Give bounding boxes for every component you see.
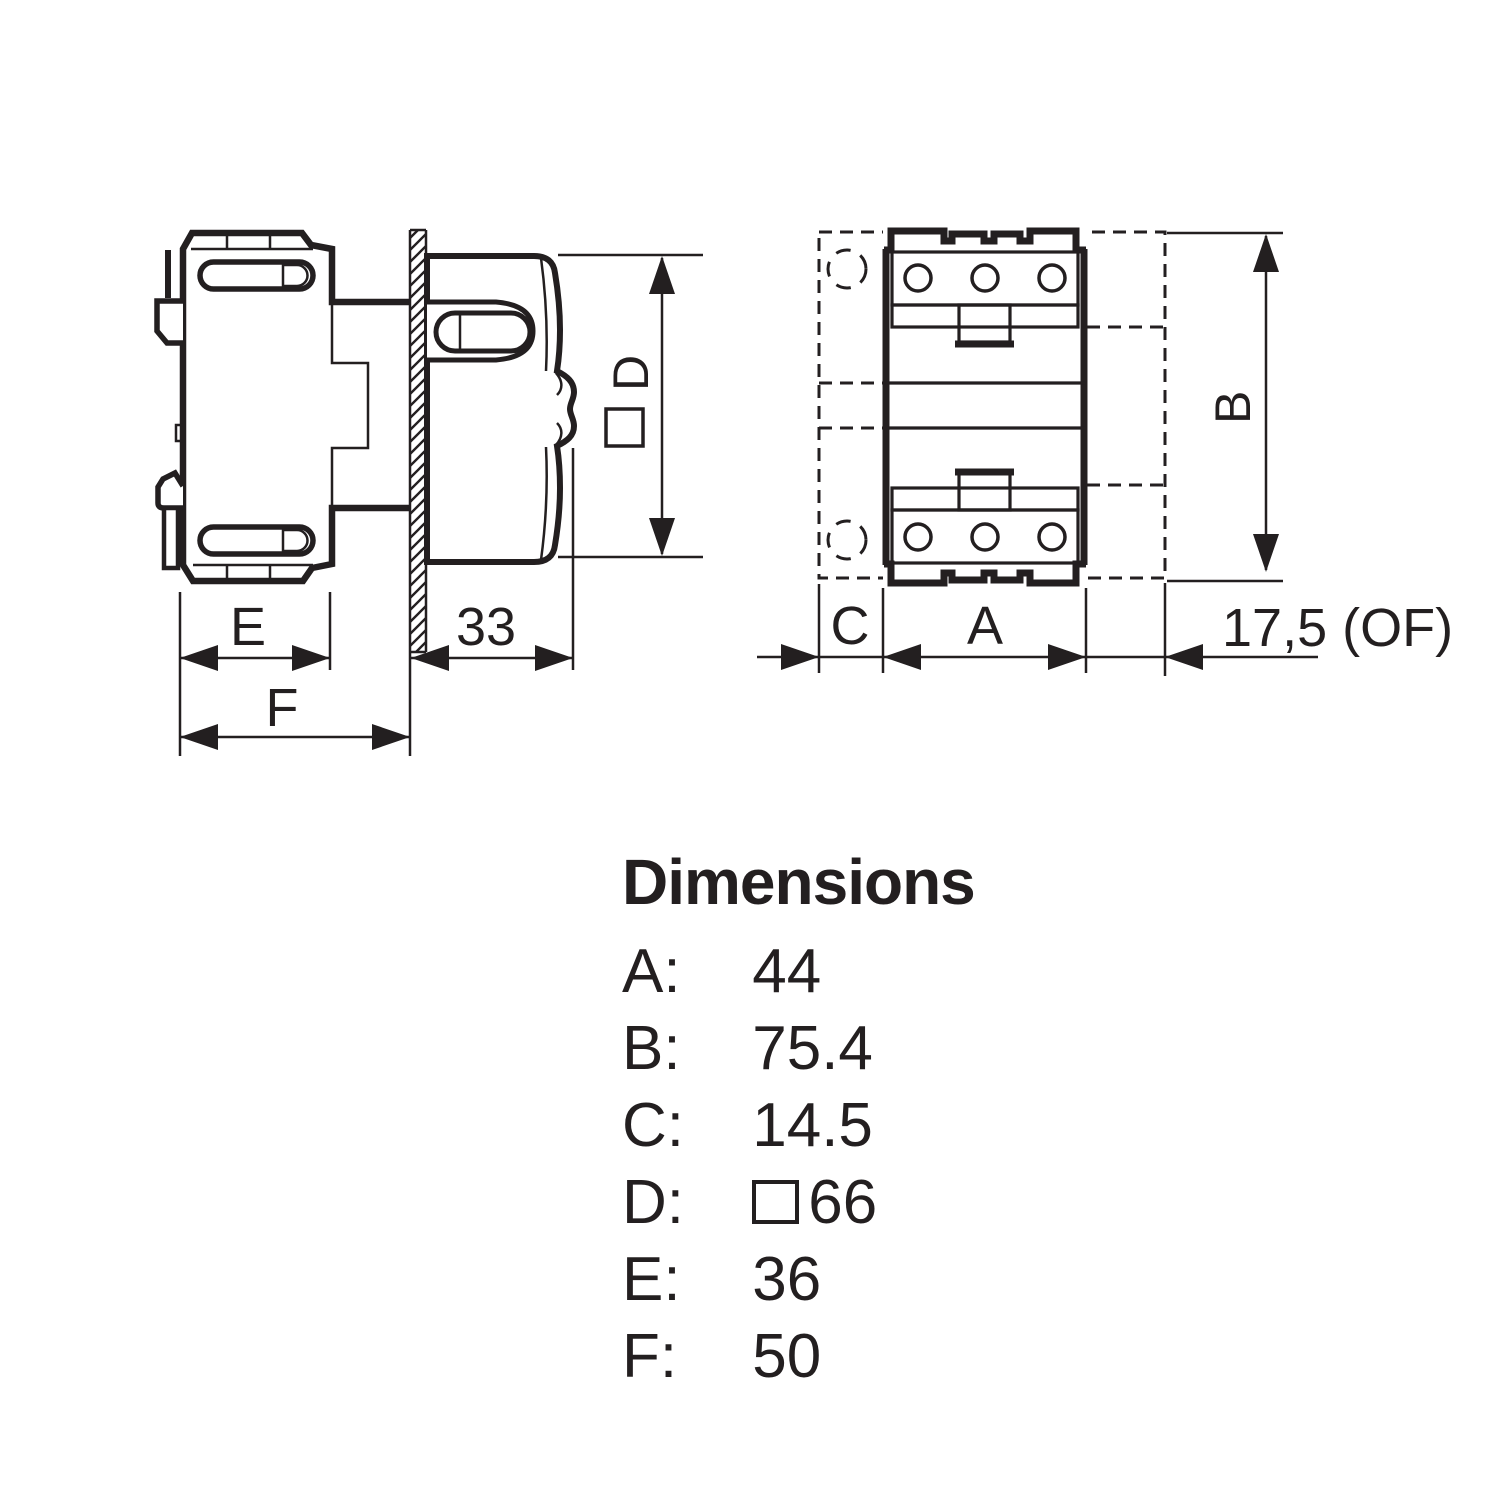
dim-label-a: A — [967, 596, 1003, 656]
arrowhead-down-icon — [649, 518, 675, 556]
legend-value: 50 — [752, 1322, 821, 1391]
arrowhead-left-icon — [1165, 644, 1203, 670]
arrowhead-right-icon — [372, 724, 410, 750]
arrowhead-left-icon — [180, 645, 218, 671]
din-rail-clip-top — [157, 250, 183, 343]
legend-label: A: — [622, 940, 735, 1004]
knob-handle — [436, 313, 530, 351]
dimensions-legend: Dimensions A: 44 B: 75.4 C: 14.5 D: 66 E… — [622, 850, 975, 1402]
slot-top — [200, 262, 313, 289]
legend-row-c: C: 14.5 — [622, 1094, 975, 1171]
mounting-panel — [410, 230, 426, 652]
dim-label-f: F — [266, 678, 299, 738]
legend-value: 75.4 — [752, 1014, 873, 1083]
legend-label: F: — [622, 1325, 735, 1389]
arrowhead-left-icon — [180, 724, 218, 750]
dim-label-b: B — [1205, 391, 1261, 424]
arrowhead-right-icon — [1048, 644, 1086, 670]
dim-label-c: C — [831, 596, 870, 656]
legend-value: 14.5 — [752, 1091, 873, 1160]
legend-value: 66 — [808, 1168, 877, 1237]
arrowhead-up-icon — [1253, 234, 1279, 272]
legend-label: C: — [622, 1094, 735, 1158]
legend-label: B: — [622, 1017, 735, 1081]
mounting-hole-dashed — [828, 521, 866, 559]
rotary-knob — [427, 256, 574, 562]
legend-value: 36 — [752, 1245, 821, 1314]
arrowhead-right-icon — [781, 644, 819, 670]
din-rail-clip-bottom — [158, 473, 183, 568]
slot-bottom — [200, 527, 313, 554]
mounting-hole-dashed — [828, 250, 866, 288]
dim-label-e: E — [230, 597, 266, 657]
legend-row-a: A: 44 — [622, 940, 975, 1017]
dimension-d: D — [558, 255, 703, 557]
dim-label-of: 17,5 (OF) — [1222, 598, 1453, 658]
front-bottom-dimensions: C A 17,5 (OF) — [757, 583, 1453, 676]
legend-row-f: F: 50 — [622, 1325, 975, 1402]
arrowhead-right-icon — [292, 645, 330, 671]
dim-label-d: D — [603, 355, 659, 391]
arrowhead-right-icon — [535, 645, 573, 671]
legend-title: Dimensions — [622, 850, 975, 914]
dim-label-33: 33 — [456, 597, 516, 657]
legend-row-d: D: 66 — [622, 1171, 975, 1248]
legend-label: D: — [622, 1171, 735, 1235]
front-view: B C A 17,5 (OF) — [757, 226, 1453, 676]
legend-row-e: E: 36 — [622, 1248, 975, 1325]
legend-rows: A: 44 B: 75.4 C: 14.5 D: 66 E: 36 F: 50 — [622, 940, 975, 1402]
square-symbol — [606, 409, 643, 446]
square-symbol — [752, 1180, 799, 1224]
arrowhead-left-icon — [883, 644, 921, 670]
dimension-b: B — [1167, 233, 1283, 581]
legend-value: 44 — [752, 937, 821, 1006]
arrowhead-down-icon — [1253, 534, 1279, 572]
legend-row-b: B: 75.4 — [622, 1017, 975, 1094]
arrowhead-up-icon — [649, 256, 675, 294]
side-view: D E 33 F — [157, 230, 703, 756]
legend-label: E: — [622, 1248, 735, 1312]
